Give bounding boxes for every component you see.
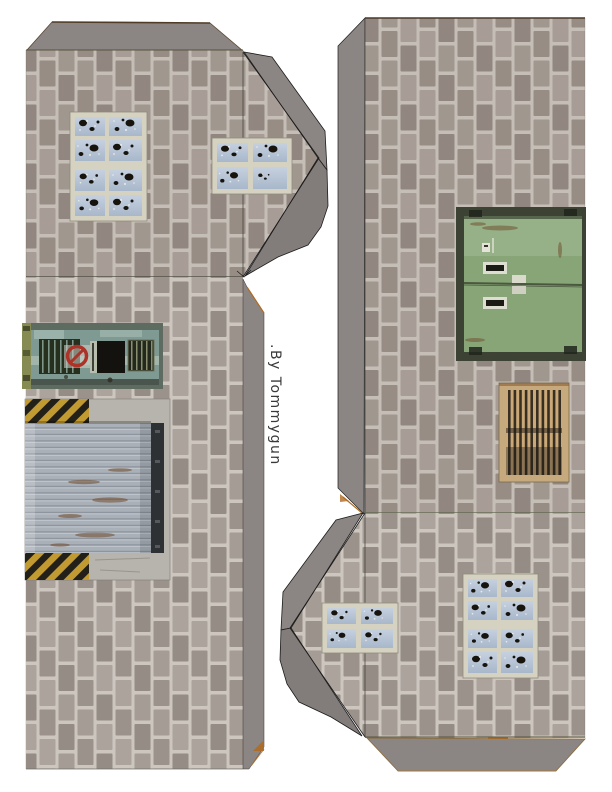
window-small-right <box>322 603 398 653</box>
right-left-glue-tab <box>338 18 365 514</box>
left-side-glue-tab <box>243 279 264 769</box>
papercraft-sheet: .By Tommygun <box>0 0 612 792</box>
left-top-glue-tab <box>27 22 243 51</box>
papercraft-graphics <box>0 0 612 792</box>
green-double-door <box>456 207 586 361</box>
louver-vent <box>499 383 569 482</box>
window-large-left <box>70 112 147 221</box>
right-bottom-glue-tab <box>367 738 585 771</box>
side-door <box>22 323 163 389</box>
right-piece <box>280 18 586 771</box>
window-large-right <box>463 574 538 678</box>
credit-text: .By Tommygun <box>267 344 283 466</box>
loading-dock-door <box>25 399 170 580</box>
window-small-left <box>212 138 292 194</box>
